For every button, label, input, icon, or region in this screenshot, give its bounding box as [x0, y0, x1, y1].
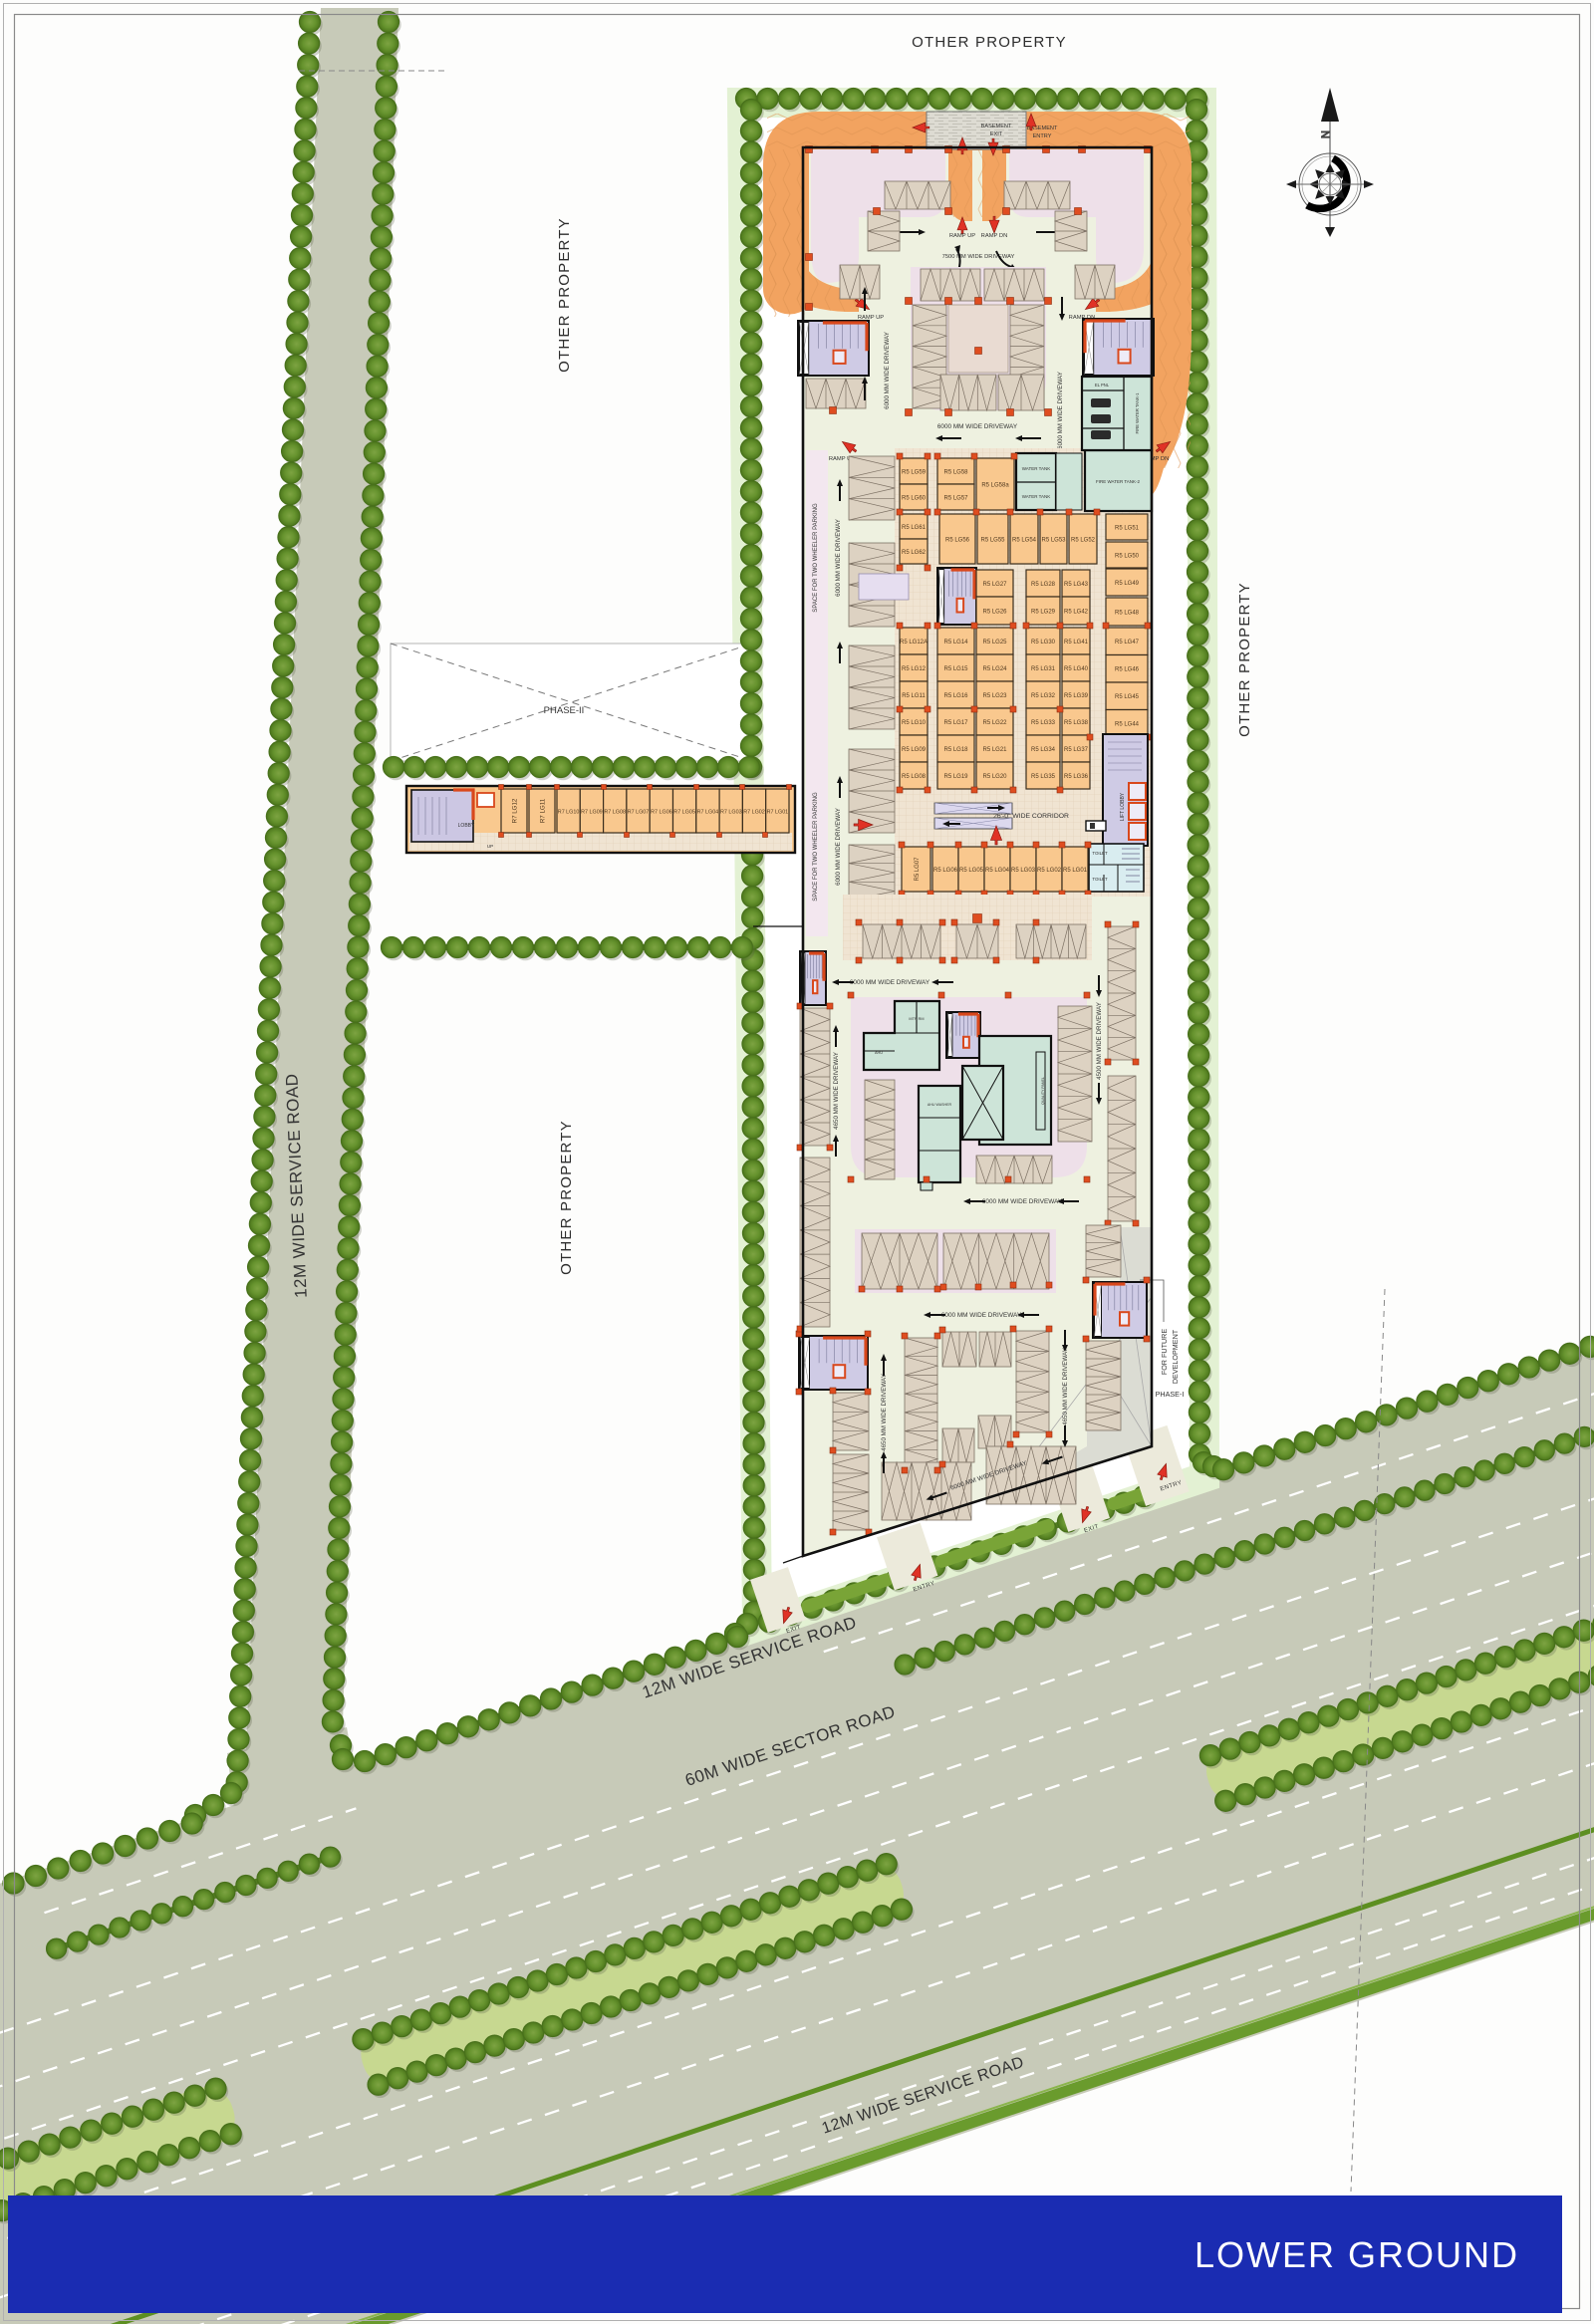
- svg-text:R5 LG49: R5 LG49: [1115, 581, 1140, 587]
- svg-text:R7 LG07: R7 LG07: [628, 809, 650, 815]
- svg-text:LOWER GROUND: LOWER GROUND: [1195, 2234, 1519, 2275]
- svg-text:R7 LG02: R7 LG02: [743, 809, 765, 815]
- svg-text:R5 LG27: R5 LG27: [982, 582, 1007, 588]
- svg-text:R7 LG04: R7 LG04: [697, 809, 719, 815]
- svg-text:R5 LG36: R5 LG36: [1064, 774, 1089, 780]
- svg-text:R5 LG31: R5 LG31: [1031, 666, 1056, 672]
- svg-text:R5 LG51: R5 LG51: [1115, 525, 1140, 531]
- svg-text:R5 LG62: R5 LG62: [902, 550, 927, 556]
- svg-text:6000 MM WIDE DRIVEWAY: 6000 MM WIDE DRIVEWAY: [850, 979, 930, 986]
- svg-text:R5 LG42: R5 LG42: [1064, 609, 1089, 615]
- svg-text:R5 LG59: R5 LG59: [902, 469, 927, 475]
- svg-text:SPACE FOR TWO WHEELER PARKING: SPACE FOR TWO WHEELER PARKING: [813, 503, 819, 613]
- svg-text:R5 LG60: R5 LG60: [902, 495, 927, 501]
- svg-text:R5 LG07: R5 LG07: [915, 857, 921, 882]
- svg-text:R5 LG52: R5 LG52: [1071, 537, 1096, 543]
- svg-text:R5 LG24: R5 LG24: [982, 666, 1007, 672]
- svg-text:FOR FUTURE: FOR FUTURE: [1160, 1329, 1169, 1376]
- svg-text:WATER TANK: WATER TANK: [1022, 494, 1051, 499]
- svg-text:OTHER PROPERTY: OTHER PROPERTY: [556, 217, 573, 373]
- svg-text:R5 LG45: R5 LG45: [1115, 694, 1140, 700]
- svg-text:R5 LG20: R5 LG20: [982, 774, 1007, 780]
- svg-text:OTHER PROPERTY: OTHER PROPERTY: [912, 34, 1067, 51]
- svg-text:SPACE FOR TWO WHEELER PARKING: SPACE FOR TWO WHEELER PARKING: [813, 792, 819, 902]
- svg-text:R7 LG06: R7 LG06: [651, 809, 672, 815]
- svg-text:R5 LG57: R5 LG57: [943, 495, 968, 501]
- svg-text:BASEMENT: BASEMENT: [981, 124, 1012, 129]
- svg-text:R7 LG08: R7 LG08: [604, 809, 626, 815]
- svg-text:ENTRY: ENTRY: [1033, 133, 1052, 139]
- svg-text:R5 LG06: R5 LG06: [933, 868, 958, 874]
- svg-text:R7 LG10: R7 LG10: [558, 809, 580, 815]
- svg-text:R5 LG09: R5 LG09: [902, 747, 927, 753]
- svg-text:R7 LG03: R7 LG03: [720, 809, 742, 815]
- svg-text:R5 LG02: R5 LG02: [1037, 868, 1062, 874]
- svg-text:R5 LG18: R5 LG18: [943, 747, 968, 753]
- svg-text:R5 LG16: R5 LG16: [943, 693, 968, 699]
- svg-text:R5 LG43: R5 LG43: [1064, 582, 1089, 588]
- svg-text:6000 MM WIDE DRIVEWAY: 6000 MM WIDE DRIVEWAY: [835, 808, 842, 886]
- svg-text:6000 MM WIDE DRIVEWAY: 6000 MM WIDE DRIVEWAY: [982, 1198, 1063, 1205]
- svg-text:R5 LG37: R5 LG37: [1064, 747, 1089, 753]
- svg-text:R5 LG58a: R5 LG58a: [981, 482, 1009, 488]
- svg-text:R5 LG29: R5 LG29: [1031, 609, 1056, 615]
- svg-text:R5 LG04: R5 LG04: [985, 868, 1010, 874]
- svg-text:R5 LG23: R5 LG23: [982, 693, 1007, 699]
- svg-text:4500 MM WIDE DRIVEWAY: 4500 MM WIDE DRIVEWAY: [1096, 1002, 1103, 1080]
- svg-text:EXIT: EXIT: [990, 131, 1003, 137]
- svg-text:R5 LG19: R5 LG19: [943, 774, 968, 780]
- svg-text:R5 LG33: R5 LG33: [1031, 720, 1056, 726]
- svg-text:7500 MM WIDE DRIVEWAY: 7500 MM WIDE DRIVEWAY: [942, 254, 1015, 260]
- svg-text:FIRE WATER TANK-1: FIRE WATER TANK-1: [1135, 392, 1140, 434]
- svg-text:R5 LG58: R5 LG58: [943, 469, 968, 475]
- svg-text:EL PNL: EL PNL: [1095, 383, 1110, 387]
- svg-text:R5 LG03: R5 LG03: [1011, 868, 1036, 874]
- svg-text:R5 LG01: R5 LG01: [1063, 868, 1088, 874]
- svg-text:6000 MM WIDE DRIVEWAY: 6000 MM WIDE DRIVEWAY: [1057, 372, 1064, 449]
- svg-text:R5 LG25: R5 LG25: [982, 640, 1007, 646]
- svg-text:R5 LG22: R5 LG22: [982, 720, 1007, 726]
- svg-text:R5 LG12A: R5 LG12A: [900, 640, 928, 646]
- svg-text:R5 LG50: R5 LG50: [1115, 553, 1140, 559]
- svg-text:N: N: [1320, 130, 1332, 138]
- svg-text:R5 LG08: R5 LG08: [902, 774, 927, 780]
- svg-text:4650 MM WIDE DRIVEWAY: 4650 MM WIDE DRIVEWAY: [1062, 1348, 1069, 1425]
- svg-text:R5 LG14: R5 LG14: [943, 640, 968, 646]
- svg-text:6000 MM WIDE DRIVEWAY: 6000 MM WIDE DRIVEWAY: [937, 423, 1018, 430]
- svg-text:DEVELOPMENT: DEVELOPMENT: [1171, 1329, 1180, 1384]
- svg-text:R5 LG30: R5 LG30: [1031, 640, 1056, 646]
- svg-text:PHASE-II: PHASE-II: [544, 705, 585, 716]
- svg-text:26'-0" WIDE CORRIDOR: 26'-0" WIDE CORRIDOR: [993, 813, 1069, 820]
- svg-text:R5 LG11: R5 LG11: [902, 693, 926, 699]
- svg-text:R5 LG28: R5 LG28: [1031, 582, 1056, 588]
- svg-text:QUALITY PANEL: QUALITY PANEL: [1041, 1077, 1045, 1105]
- svg-text:R5 LG17: R5 LG17: [943, 720, 968, 726]
- svg-text:R5 LG54: R5 LG54: [1012, 537, 1037, 543]
- svg-text:PHASE-I: PHASE-I: [1156, 1390, 1185, 1399]
- svg-text:R5 LG53: R5 LG53: [1041, 537, 1066, 543]
- svg-text:R7 LG09: R7 LG09: [581, 809, 603, 815]
- svg-text:FIRE WATER TANK-2: FIRE WATER TANK-2: [1096, 479, 1141, 484]
- svg-text:R5 LG47: R5 LG47: [1115, 640, 1140, 646]
- svg-text:R7 LG12: R7 LG12: [511, 798, 518, 823]
- svg-text:6000 MM WIDE DRIVEWAY: 6000 MM WIDE DRIVEWAY: [884, 332, 891, 409]
- svg-text:R5 LG56: R5 LG56: [945, 537, 970, 543]
- svg-text:6000 MM WIDE DRIVEWAY: 6000 MM WIDE DRIVEWAY: [941, 1312, 1022, 1319]
- svg-text:4650 MM WIDE DRIVEWAY: 4650 MM WIDE DRIVEWAY: [833, 1052, 840, 1130]
- svg-text:TOILET: TOILET: [1092, 877, 1108, 882]
- svg-text:R5 LG41: R5 LG41: [1064, 640, 1089, 646]
- svg-text:R5 LG10: R5 LG10: [902, 720, 927, 726]
- svg-text:R5 LG26: R5 LG26: [982, 609, 1007, 615]
- svg-text:R5 LG46: R5 LG46: [1115, 667, 1140, 673]
- svg-text:R5 LG15: R5 LG15: [943, 666, 968, 672]
- svg-text:4650 MM WIDE DRIVEWAY: 4650 MM WIDE DRIVEWAY: [881, 1374, 888, 1451]
- svg-text:R5 LG32: R5 LG32: [1031, 693, 1056, 699]
- svg-text:OTHER PROPERTY: OTHER PROPERTY: [558, 1120, 575, 1275]
- svg-text:R5 LG34: R5 LG34: [1031, 747, 1056, 753]
- svg-text:TOILET: TOILET: [1092, 851, 1108, 856]
- svg-text:LOBBY: LOBBY: [458, 823, 475, 829]
- svg-text:R5 LG48: R5 LG48: [1115, 610, 1140, 616]
- svg-text:MTR RM: MTR RM: [909, 1017, 924, 1021]
- svg-text:LIFT LOBBY: LIFT LOBBY: [1120, 792, 1126, 821]
- svg-text:OTHER PROPERTY: OTHER PROPERTY: [1236, 582, 1253, 737]
- svg-text:RAMP UP: RAMP UP: [949, 233, 975, 239]
- svg-text:AHU WASHER: AHU WASHER: [928, 1103, 952, 1107]
- svg-text:UP: UP: [487, 844, 493, 849]
- svg-text:R5 LG12: R5 LG12: [902, 666, 927, 672]
- svg-text:R5 LG61: R5 LG61: [902, 525, 927, 531]
- svg-text:R5 LG39: R5 LG39: [1064, 693, 1089, 699]
- svg-text:WATER TANK: WATER TANK: [1022, 466, 1051, 471]
- svg-text:R5 LG40: R5 LG40: [1064, 666, 1089, 672]
- svg-text:R5 LG05: R5 LG05: [959, 868, 984, 874]
- svg-text:R5 LG38: R5 LG38: [1064, 720, 1089, 726]
- svg-text:R5 LG35: R5 LG35: [1031, 774, 1056, 780]
- svg-text:R7 LG05: R7 LG05: [673, 809, 695, 815]
- svg-text:6000 MM WIDE DRIVEWAY: 6000 MM WIDE DRIVEWAY: [835, 519, 842, 597]
- svg-text:R7 LG11: R7 LG11: [539, 798, 546, 823]
- svg-text:RAMP DN: RAMP DN: [981, 233, 1008, 239]
- svg-text:R5 LG44: R5 LG44: [1115, 722, 1140, 728]
- svg-text:R7 LG01: R7 LG01: [767, 809, 789, 815]
- svg-text:R5 LG55: R5 LG55: [980, 537, 1005, 543]
- svg-text:AHU: AHU: [875, 1051, 883, 1055]
- svg-text:R5 LG21: R5 LG21: [982, 747, 1007, 753]
